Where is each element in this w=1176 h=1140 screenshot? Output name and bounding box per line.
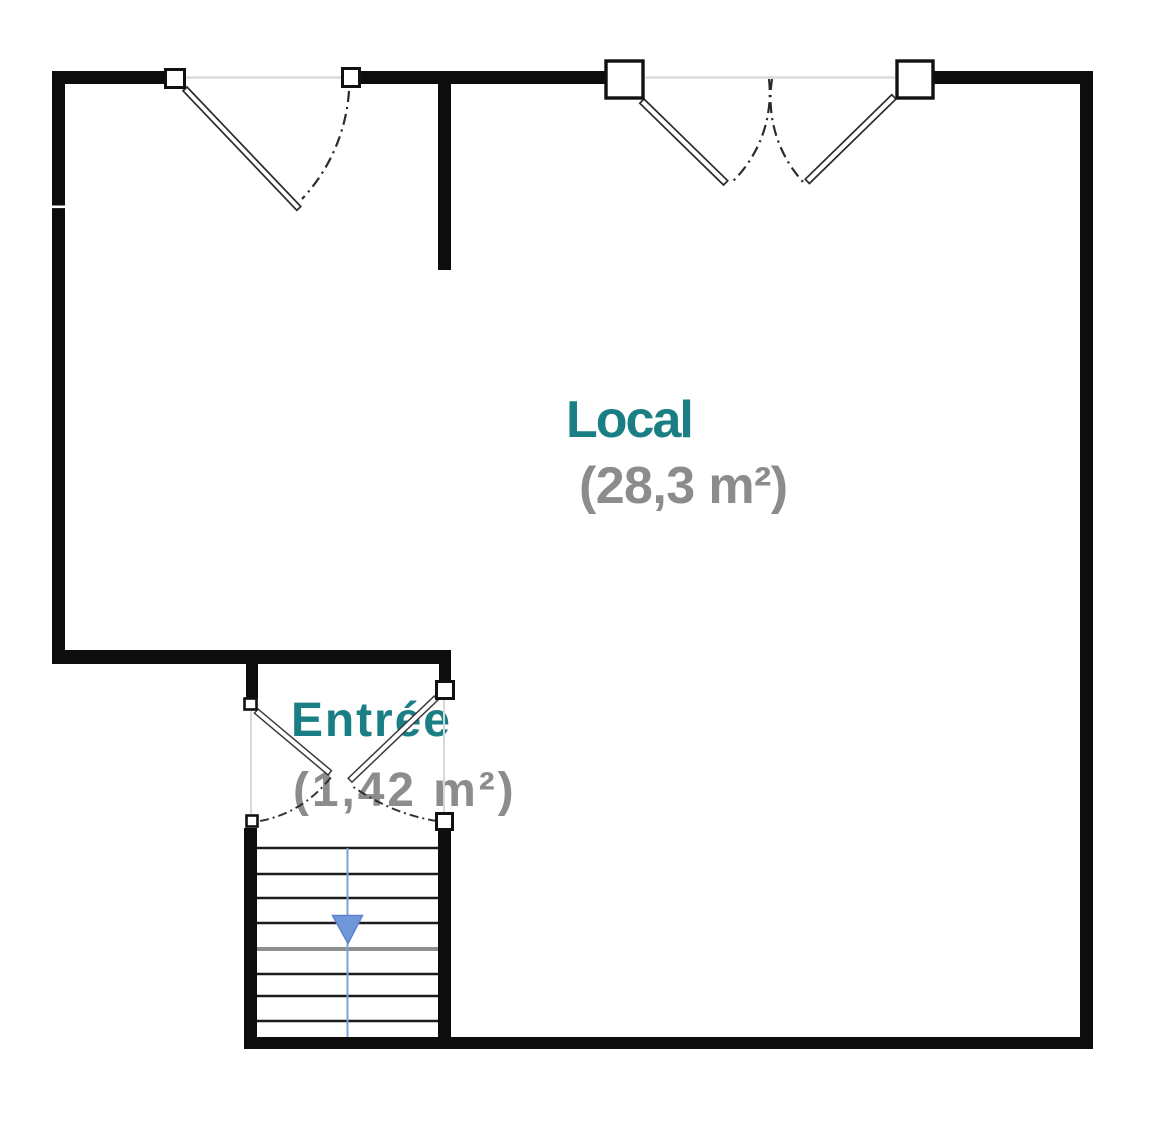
svg-text:Local: Local <box>566 391 692 449</box>
svg-text:(28,3 m²): (28,3 m²) <box>579 457 787 515</box>
